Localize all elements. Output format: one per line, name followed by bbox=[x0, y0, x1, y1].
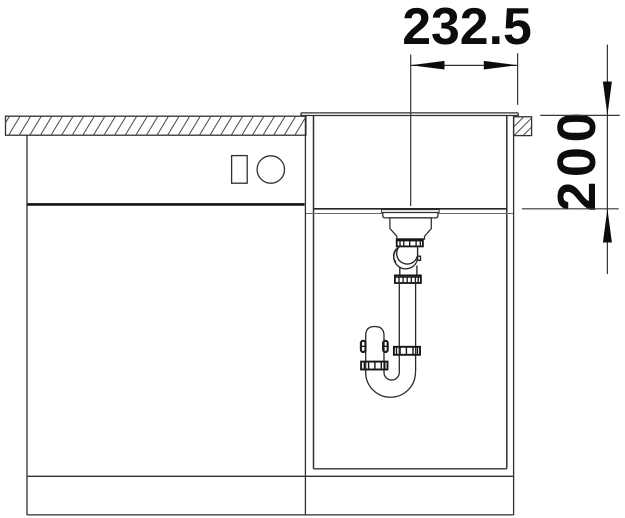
svg-text:200: 200 bbox=[547, 108, 607, 212]
svg-text:232.5: 232.5 bbox=[402, 0, 532, 55]
